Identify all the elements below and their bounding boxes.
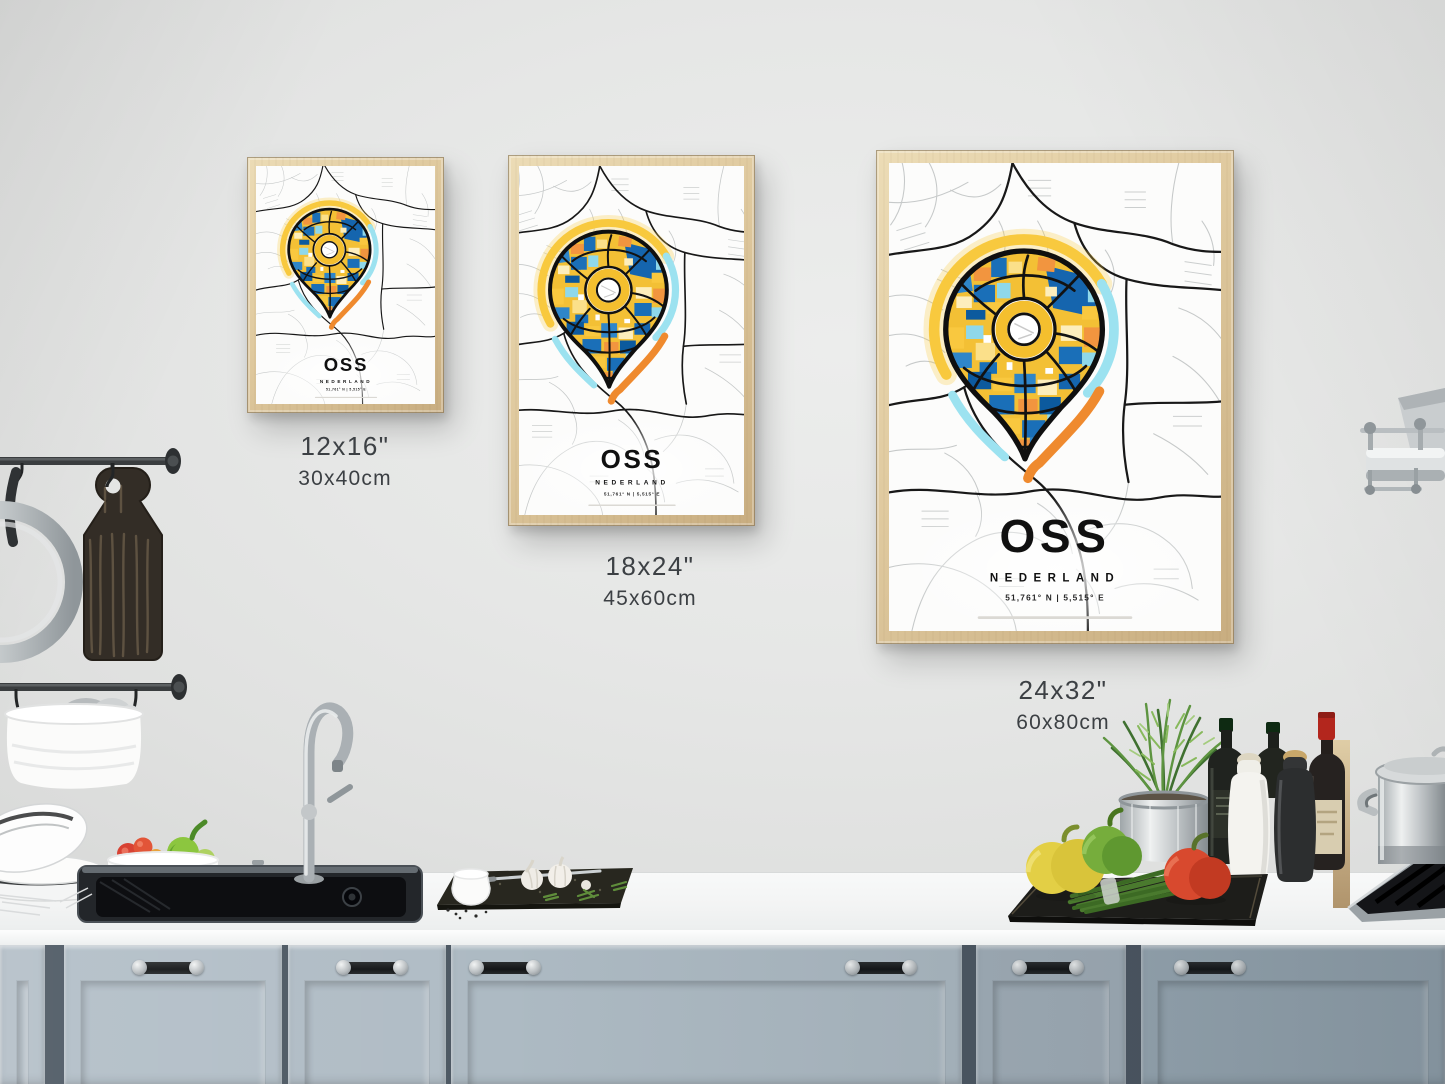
wall-rail-upper bbox=[0, 448, 181, 487]
framed-map-poster-medium: OSS NEDERLAND 51,761° N | 5,515° E bbox=[508, 155, 755, 526]
size-cm: 45x60cm bbox=[540, 587, 760, 611]
poster-subtitle: NEDERLAND bbox=[538, 479, 725, 486]
poster-caption: OSS NEDERLAND 51,761° N | 5,515° E bbox=[889, 514, 1220, 620]
cabinet-handle bbox=[1020, 962, 1076, 974]
size-inches: 24x32" bbox=[953, 675, 1173, 706]
poster-title: OSS bbox=[889, 514, 1220, 560]
poster-caption: OSS NEDERLAND 51,761° N | 5,515° E bbox=[279, 356, 412, 399]
wall-rail-lower bbox=[0, 674, 187, 700]
poster-caption: OSS NEDERLAND 51,761° N | 5,515° E bbox=[538, 446, 725, 506]
poster-subtitle: NEDERLAND bbox=[889, 571, 1220, 584]
wine-bottle bbox=[1309, 712, 1345, 870]
size-cm: 60x80cm bbox=[953, 711, 1173, 735]
poster-title: OSS bbox=[279, 356, 412, 375]
size-inches: 12x16" bbox=[235, 431, 455, 462]
size-label-medium: 18x24" 45x60cm bbox=[540, 551, 760, 611]
size-label-small: 12x16" 30x40cm bbox=[235, 431, 455, 491]
pepper-grinders bbox=[1228, 750, 1316, 882]
cabinet-handle bbox=[853, 962, 909, 974]
countertop bbox=[0, 872, 1445, 931]
frying-pan bbox=[0, 472, 74, 654]
cooking-pot bbox=[1361, 749, 1445, 864]
size-cm: 30x40cm bbox=[235, 467, 455, 491]
faucet bbox=[294, 708, 350, 884]
cabinet-door bbox=[0, 945, 45, 1084]
cabinet-handle bbox=[477, 962, 533, 974]
cabinet-door bbox=[1141, 945, 1445, 1084]
cabinet-handle bbox=[344, 962, 400, 974]
cabinet-handle bbox=[140, 962, 196, 974]
poster-paper: OSS NEDERLAND 51,761° N | 5,515° E bbox=[889, 163, 1221, 631]
framed-map-poster-large: OSS NEDERLAND 51,761° N | 5,515° E bbox=[876, 150, 1234, 644]
cabinet-drawer-wide bbox=[451, 945, 962, 1084]
cabinet-door bbox=[64, 945, 282, 1084]
poster-coordinates: 51,761° N | 5,515° E bbox=[279, 388, 412, 392]
kitchen-poster-mockup-photo: OSS NEDERLAND 51,761° N | 5,515° E OSS N… bbox=[0, 0, 1445, 1084]
oil-bottles bbox=[1208, 718, 1291, 864]
poster-coordinates: 51,761° N | 5,515° E bbox=[538, 492, 725, 497]
poster-fineprint bbox=[978, 617, 1133, 620]
size-inches: 18x24" bbox=[540, 551, 760, 582]
poster-coordinates: 51,761° N | 5,515° E bbox=[889, 594, 1220, 603]
hanging-cutting-board bbox=[84, 463, 162, 660]
cabinet-handle bbox=[1182, 962, 1238, 974]
cabinet-door bbox=[288, 945, 446, 1084]
poster-paper: OSS NEDERLAND 51,761° N | 5,515° E bbox=[256, 166, 435, 404]
poster-paper: OSS NEDERLAND 51,761° N | 5,515° E bbox=[519, 166, 744, 515]
utensil-bucket bbox=[5, 689, 143, 789]
poster-title: OSS bbox=[538, 446, 725, 472]
poster-fineprint bbox=[314, 397, 376, 398]
poster-subtitle: NEDERLAND bbox=[279, 379, 412, 384]
framed-map-poster-small: OSS NEDERLAND 51,761° N | 5,515° E bbox=[247, 157, 444, 413]
kitchen-cabinets bbox=[0, 945, 1445, 1084]
range-hood bbox=[1360, 388, 1445, 495]
size-label-large: 24x32" 60x80cm bbox=[953, 675, 1173, 735]
cabinet-door bbox=[976, 945, 1126, 1084]
